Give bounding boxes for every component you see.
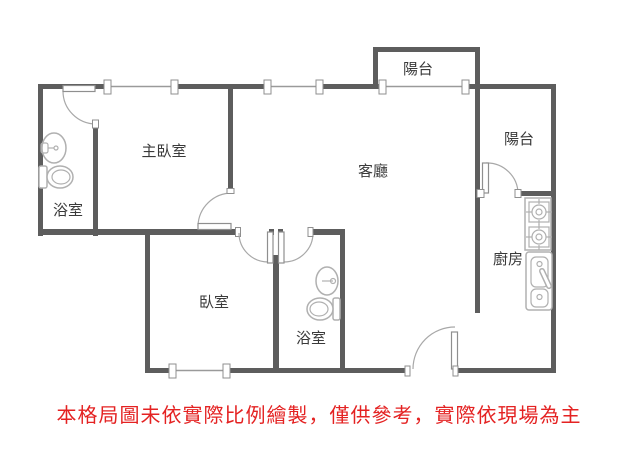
door-swing-arc bbox=[413, 327, 455, 369]
wall-segment bbox=[145, 368, 172, 373]
balcony-top-wall-right bbox=[475, 47, 480, 86]
room-labels: 主臥室 浴室 客廳 陽台 陽台 廚房 臥室 浴室 bbox=[53, 60, 534, 347]
window-frame bbox=[316, 80, 323, 94]
balcony-top-wall-left bbox=[373, 47, 378, 86]
window-frame bbox=[104, 80, 111, 94]
window-top-1 bbox=[104, 80, 178, 94]
door-jamb bbox=[227, 189, 234, 194]
label-kitchen: 廚房 bbox=[493, 250, 523, 268]
walls bbox=[38, 47, 556, 373]
window-frame bbox=[264, 80, 271, 94]
wall-segment bbox=[321, 84, 381, 89]
toilet-tank bbox=[39, 166, 47, 188]
label-master-bedroom: 主臥室 bbox=[141, 142, 186, 160]
label-balcony-right: 陽台 bbox=[504, 130, 534, 148]
door-panel bbox=[279, 232, 285, 263]
toilet-bowl bbox=[47, 166, 73, 188]
sink-icon bbox=[41, 133, 66, 163]
door-jamb bbox=[93, 120, 99, 128]
window-frame bbox=[171, 80, 178, 94]
door-swing-arc bbox=[284, 233, 313, 262]
door-jamb bbox=[477, 190, 484, 198]
toilet-icon bbox=[39, 166, 73, 188]
door-jamb bbox=[405, 366, 410, 376]
door-swing-arc bbox=[63, 91, 96, 124]
door-panel bbox=[63, 86, 95, 92]
wall-segment bbox=[176, 84, 266, 89]
wall-master-right bbox=[228, 84, 233, 190]
window-balcony-top bbox=[379, 80, 469, 94]
door-entrance bbox=[405, 327, 458, 376]
window-frame bbox=[379, 80, 386, 94]
wall-bed-bath2-divider bbox=[273, 255, 279, 373]
door-jamb bbox=[453, 366, 458, 376]
balcony-top-wall-top bbox=[373, 47, 480, 52]
wall-segment bbox=[467, 84, 556, 89]
disclaimer-text: 本格局圖未依實際比例繪製，僅供參考，實際依現場為主 bbox=[57, 403, 582, 427]
door-bedroom bbox=[239, 232, 273, 263]
toilet-bowl bbox=[307, 298, 333, 320]
door-panel bbox=[483, 163, 489, 193]
door-panel bbox=[268, 232, 274, 263]
door-balcony-right bbox=[477, 163, 521, 198]
door-bathroom-second bbox=[279, 228, 314, 264]
door-panel bbox=[198, 224, 231, 230]
label-living-room: 客廳 bbox=[358, 162, 388, 180]
wall-segment bbox=[453, 368, 556, 373]
wall-left-exterior bbox=[38, 84, 43, 236]
door-bathroom-main bbox=[63, 86, 99, 129]
door-jamb bbox=[308, 228, 313, 237]
label-bedroom: 臥室 bbox=[199, 293, 229, 311]
floor-plan: 主臥室 浴室 客廳 陽台 陽台 廚房 臥室 浴室 本格局圖未依實際比例繪製，僅供… bbox=[0, 0, 638, 460]
window-frame bbox=[169, 364, 176, 378]
door-panel bbox=[452, 332, 458, 369]
door-swing-arc bbox=[486, 163, 518, 194]
window-frame bbox=[223, 364, 230, 378]
sink-icon bbox=[316, 267, 338, 295]
label-bathroom-main: 浴室 bbox=[53, 201, 83, 219]
door-swing-arc bbox=[198, 193, 232, 226]
window-top-2 bbox=[264, 80, 323, 94]
door-jamb bbox=[515, 190, 521, 198]
wall-bath1-right bbox=[93, 121, 98, 236]
wall-balcony2-bottom bbox=[518, 191, 556, 196]
toilet-icon bbox=[307, 298, 340, 320]
window-frame bbox=[462, 80, 469, 94]
door-swing-arc bbox=[239, 233, 268, 262]
toilet-tank bbox=[333, 298, 340, 320]
stove-two-burner-icon bbox=[525, 198, 552, 250]
kitchen-sink-counter-icon bbox=[526, 252, 552, 310]
label-bathroom-second: 浴室 bbox=[296, 329, 326, 347]
wall-segment bbox=[228, 368, 409, 373]
window-bedroom-bottom bbox=[169, 364, 230, 378]
wall-bath2-top bbox=[309, 229, 345, 235]
label-balcony-top: 陽台 bbox=[403, 60, 433, 78]
wall-kitchen-left bbox=[475, 84, 480, 313]
door-jamb bbox=[236, 228, 241, 237]
floor-plan-page: 主臥室 浴室 客廳 陽台 陽台 廚房 臥室 浴室 本格局圖未依實際比例繪製，僅供… bbox=[0, 0, 638, 460]
wall-bedroom-left bbox=[145, 229, 150, 373]
